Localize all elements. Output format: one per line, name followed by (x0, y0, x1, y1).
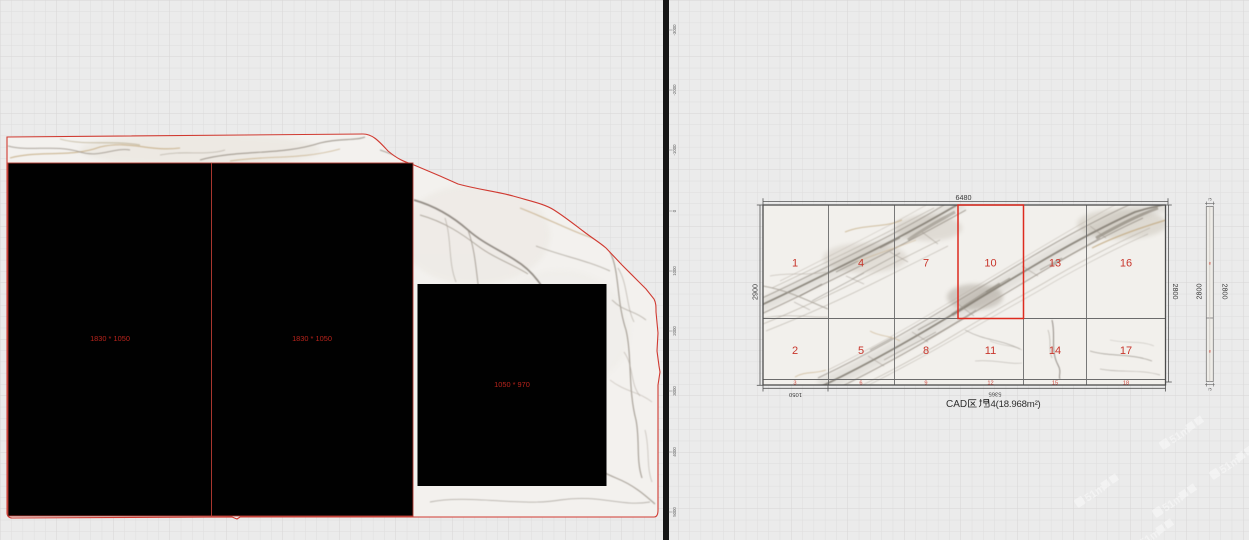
svg-text:5: 5 (858, 345, 864, 357)
svg-text:3: 3 (793, 380, 796, 386)
svg-text:8: 8 (1209, 262, 1211, 266)
svg-text:11: 11 (985, 345, 996, 357)
svg-text:2800: 2800 (1194, 284, 1203, 300)
svg-text:12: 12 (987, 380, 993, 386)
svg-text:2900: 2900 (750, 284, 759, 300)
svg-text:1000: 1000 (672, 266, 677, 276)
svg-text:4000: 4000 (672, 447, 677, 457)
svg-text:9: 9 (924, 380, 927, 386)
svg-text:6480: 6480 (956, 193, 972, 202)
svg-text:4(18.968m²): 4(18.968m²) (991, 399, 1041, 410)
svg-text:-1000: -1000 (672, 144, 677, 156)
svg-text:1050: 1050 (789, 391, 802, 397)
svg-text:7: 7 (923, 258, 929, 270)
svg-text:16: 16 (1120, 258, 1132, 270)
svg-text:CAD: CAD (946, 399, 967, 410)
svg-text:8: 8 (923, 345, 929, 357)
svg-text:1830 * 1050: 1830 * 1050 (292, 334, 332, 343)
svg-text:14: 14 (1049, 345, 1061, 357)
svg-text:75: 75 (1208, 198, 1212, 202)
svg-text:3000: 3000 (672, 386, 677, 396)
svg-text:17: 17 (1120, 345, 1132, 357)
svg-text:5000: 5000 (672, 507, 677, 517)
svg-text:1: 1 (792, 258, 798, 270)
svg-text:2800: 2800 (1220, 284, 1229, 300)
svg-text:13: 13 (1049, 258, 1061, 270)
svg-text:6: 6 (859, 380, 862, 386)
svg-text:8: 8 (1209, 350, 1211, 354)
svg-text:18: 18 (1123, 380, 1129, 386)
svg-text:1050 * 970: 1050 * 970 (494, 380, 530, 389)
svg-text:2: 2 (792, 345, 798, 357)
svg-text:75: 75 (1208, 387, 1212, 391)
svg-text:-2000: -2000 (672, 84, 677, 96)
svg-text:10: 10 (984, 258, 996, 270)
svg-text:5365: 5365 (989, 391, 1002, 397)
svg-text:4: 4 (858, 258, 864, 270)
svg-text:1830 * 1050: 1830 * 1050 (90, 334, 130, 343)
svg-text:2000: 2000 (672, 326, 677, 336)
svg-text:-3000: -3000 (672, 24, 677, 36)
svg-text:2800: 2800 (1171, 284, 1180, 300)
svg-text:15: 15 (1052, 380, 1058, 386)
